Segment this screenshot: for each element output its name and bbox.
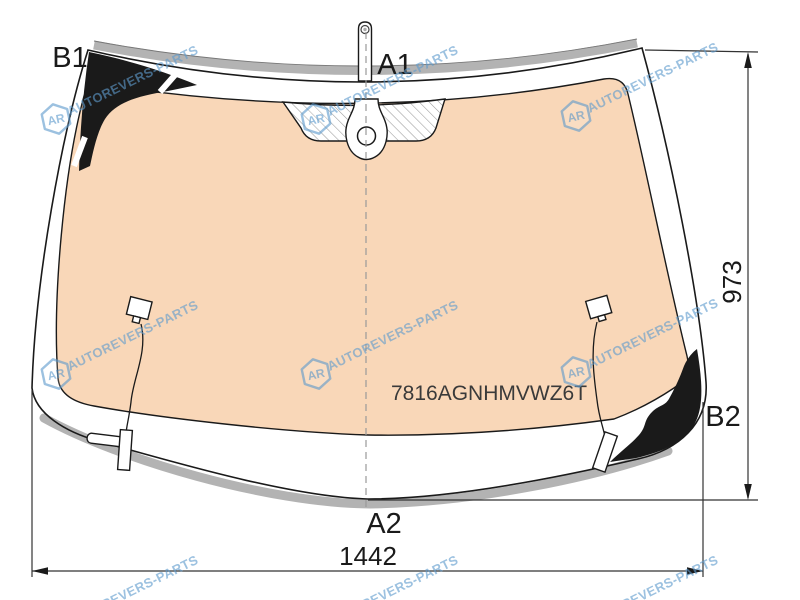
label-a2: A2 — [366, 508, 401, 540]
windshield-diagram: B1 A1 B2 A2 1442 973 7816AGNHMVWZ6T AR A… — [0, 0, 800, 600]
arrow-up — [744, 52, 752, 68]
arrow-left — [32, 567, 48, 575]
watermark-brand-text: AUTOREVERS-PARTS — [65, 552, 201, 600]
watermark: AR AUTOREVERS-PARTS — [40, 552, 200, 600]
dim-height-value: 973 — [717, 260, 747, 303]
arrow-down — [744, 484, 752, 500]
label-b1: B1 — [52, 42, 87, 74]
part-number: 7816AGNHMVWZ6T — [391, 382, 587, 405]
label-b2: B2 — [705, 401, 740, 433]
watermark-brand-text: AUTOREVERS-PARTS — [585, 552, 721, 600]
dim-width-value: 1442 — [339, 541, 397, 571]
diagram-canvas: B1 A1 B2 A2 1442 973 7816AGNHMVWZ6T AR A… — [0, 0, 800, 600]
watermark: AR AUTOREVERS-PARTS — [560, 552, 720, 600]
center-pin-eye-dot — [363, 28, 366, 31]
left-connector — [118, 430, 133, 471]
